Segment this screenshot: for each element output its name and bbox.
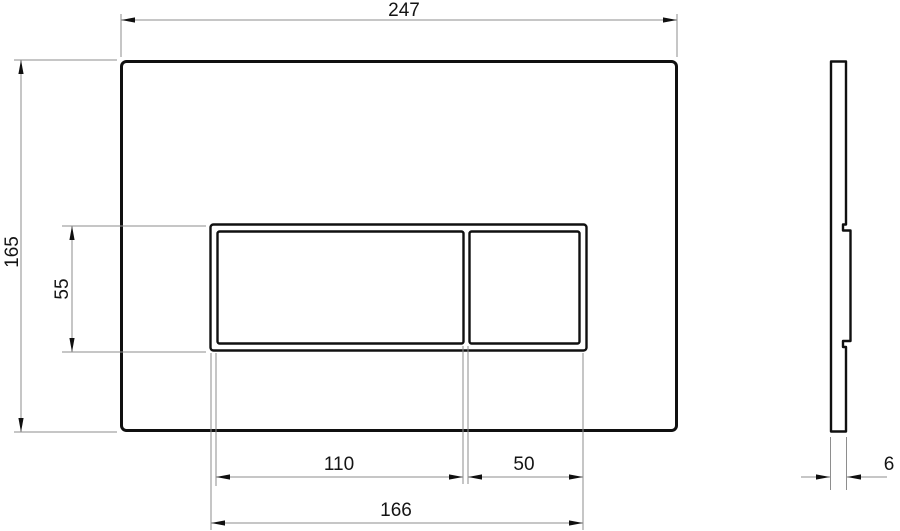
dim-plate-thickness: 6 [801, 437, 894, 490]
arrow-left-icon [121, 17, 135, 22]
side-view [831, 62, 851, 432]
large-flush-button [218, 232, 464, 344]
dim-button-panel-height-label: 55 [52, 278, 73, 299]
technical-drawing-page: 247 165 55 110 50 [0, 0, 900, 531]
dim-small-button-width: 50 [468, 454, 583, 480]
arrow-up-icon [69, 226, 74, 240]
dim-large-button-width: 110 [216, 454, 463, 480]
dim-button-panel-width: 166 [211, 500, 583, 526]
dim-plate-height-label: 165 [2, 236, 23, 268]
small-flush-button [470, 232, 580, 344]
arrow-left-icon [216, 474, 230, 479]
dim-plate-width: 247 [121, 0, 677, 57]
arrow-up-icon [18, 60, 23, 74]
arrow-down-icon [69, 338, 74, 352]
arrow-down-icon [18, 418, 23, 432]
arrow-left-icon [847, 474, 861, 479]
side-profile-outline [831, 62, 851, 432]
arrow-right-icon [816, 474, 830, 479]
dim-button-panel-width-label: 166 [380, 500, 412, 521]
flush-plate-drawing: 247 165 55 110 50 [0, 0, 900, 531]
dim-plate-height: 165 [2, 60, 117, 432]
dim-large-button-width-label: 110 [324, 454, 354, 475]
arrow-right-icon [663, 17, 677, 22]
arrow-right-icon [569, 474, 583, 479]
arrow-left-icon [211, 520, 225, 525]
dim-plate-thickness-label: 6 [884, 454, 895, 475]
dim-small-button-width-label: 50 [513, 454, 534, 475]
arrow-right-icon [569, 520, 583, 525]
arrow-right-icon [449, 474, 463, 479]
front-view [122, 62, 677, 431]
arrow-left-icon [468, 474, 482, 479]
dim-plate-width-label: 247 [388, 0, 420, 21]
